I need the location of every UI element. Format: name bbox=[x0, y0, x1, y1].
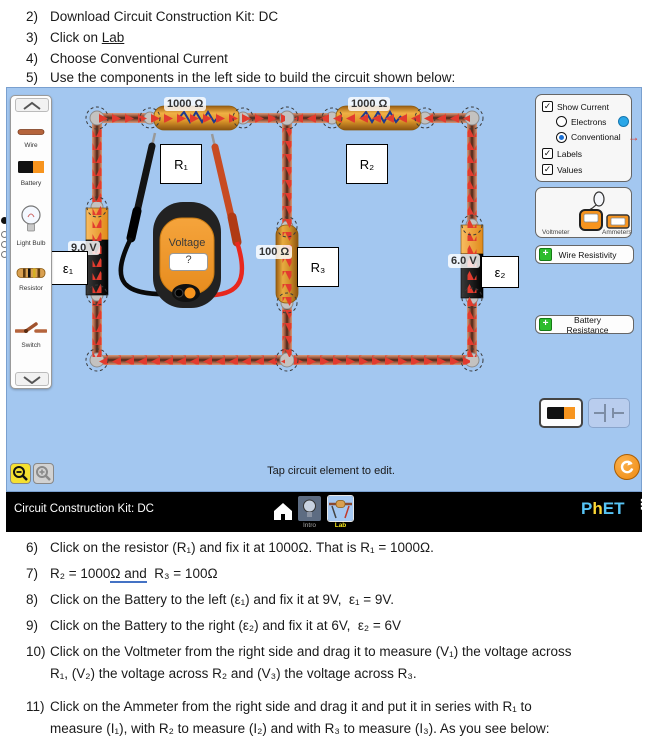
instruction-line: 9)Click on the Battery to the right (ε₂)… bbox=[26, 618, 401, 633]
tab-intro-label[interactable]: Intro bbox=[298, 522, 321, 529]
phet-logo: PhET bbox=[581, 499, 624, 519]
status-message: Tap circuit element to edit. bbox=[206, 465, 456, 477]
item-text: Click on the Battery to the left (ε₁) an… bbox=[50, 592, 394, 607]
worksheet-page: 2)Download Circuit Construction Kit: DC … bbox=[0, 0, 662, 740]
toolbox-scroll-up[interactable] bbox=[15, 98, 49, 112]
zoom-in-button[interactable] bbox=[33, 463, 54, 484]
item-number: 7) bbox=[26, 566, 50, 581]
voltmeter-tool[interactable]: Voltmeter bbox=[542, 229, 569, 236]
item-text: R₃ = 100Ω bbox=[147, 566, 218, 581]
zoom-in-icon bbox=[35, 465, 52, 482]
checkbox-checked-icon: ✓ bbox=[542, 148, 553, 159]
battery2-value-label: 6.0 V bbox=[448, 254, 480, 268]
sim-navbar: Circuit Construction Kit: DC Intro bbox=[6, 492, 642, 532]
lab-circuit-icon bbox=[328, 496, 353, 521]
r3-value-label: 100 Ω bbox=[256, 245, 292, 259]
checkbox-checked-icon: ✓ bbox=[542, 101, 553, 112]
toolbox-item-wire[interactable]: Wire bbox=[11, 123, 51, 149]
wire-resistivity-button[interactable]: + Wire Resistivity bbox=[535, 245, 634, 264]
view-options-panel: ✓ Show Current Electrons Conventional → … bbox=[535, 94, 632, 182]
phet-simulation: Voltage ? 1000 Ω 1000 Ω 100 Ω 9.0 V 6.0 … bbox=[6, 87, 642, 532]
callout-r3: R₃ bbox=[297, 247, 339, 287]
item-number: 5) bbox=[26, 70, 50, 85]
radio-unselected-icon bbox=[556, 116, 567, 127]
callout-e1: ε₁ bbox=[48, 251, 88, 285]
item-text: Click on the resistor (R₁) and fix it at… bbox=[50, 540, 434, 555]
instruction-line: 11)Click on the Ammeter from the right s… bbox=[26, 699, 532, 714]
meters-panel: Voltmeter Ammeters bbox=[535, 187, 632, 238]
zoom-out-button[interactable] bbox=[10, 463, 31, 484]
chevron-up-icon bbox=[22, 101, 42, 110]
item-text: Download Circuit Construction Kit: DC bbox=[50, 9, 278, 24]
callout-r2: R₂ bbox=[346, 144, 388, 184]
labels-checkbox[interactable]: ✓ Labels bbox=[542, 148, 582, 159]
electron-dot-icon bbox=[618, 116, 629, 127]
toolbox-item-lightbulb[interactable]: Light Bulb bbox=[11, 204, 51, 247]
lab-link[interactable]: Lab bbox=[102, 30, 125, 45]
toolbox-item-battery[interactable]: Battery bbox=[11, 160, 51, 187]
kebab-menu-icon[interactable]: ⋮ bbox=[635, 500, 649, 508]
battery-schematic-icon bbox=[594, 403, 624, 423]
item-text: measure (I₁), with R₂ to measure (I₂) an… bbox=[50, 721, 549, 736]
instruction-line: R₁, (V₂) the voltage across R₂ and (V₃) … bbox=[50, 666, 417, 681]
conventional-radio[interactable]: Conventional → bbox=[556, 131, 640, 143]
instruction-line: 3)Click on Lab bbox=[26, 30, 124, 45]
item-number: 8) bbox=[26, 592, 50, 607]
tab-lab[interactable] bbox=[328, 496, 353, 521]
voltmeter-title: Voltage bbox=[163, 237, 211, 249]
reset-all-button[interactable] bbox=[614, 454, 640, 480]
item-number: 6) bbox=[26, 540, 50, 555]
r1-value-label: 1000 Ω bbox=[164, 97, 206, 111]
item-text: Click on the Battery to the right (ε₂) a… bbox=[50, 618, 401, 633]
toolbox-scroll-down[interactable] bbox=[15, 372, 49, 386]
battery-view-schematic-toggle[interactable] bbox=[588, 398, 630, 428]
item-text: Click on the Ammeter from the right side… bbox=[50, 699, 532, 714]
conventional-arrow-icon: → bbox=[628, 131, 640, 143]
voltmeter-reading: ? bbox=[169, 253, 208, 271]
item-number: 10) bbox=[26, 644, 50, 659]
instruction-line: 2)Download Circuit Construction Kit: DC bbox=[26, 9, 278, 24]
item-text: Click on bbox=[50, 30, 102, 45]
callout-r1: R₁ bbox=[160, 144, 202, 184]
instruction-line: 5)Use the components in the left side to… bbox=[26, 70, 455, 85]
battery-realistic-icon bbox=[546, 406, 576, 420]
instruction-line: 10)Click on the Voltmeter from the right… bbox=[26, 644, 572, 659]
lightbulb-icon bbox=[17, 204, 45, 234]
item-number: 4) bbox=[26, 51, 50, 66]
resistor-icon bbox=[16, 267, 46, 279]
item-text: Use the components in the left side to b… bbox=[50, 70, 455, 85]
wire-icon bbox=[17, 128, 45, 136]
callout-e2: ε₂ bbox=[481, 256, 519, 288]
expand-plus-icon: + bbox=[539, 318, 552, 331]
chevron-down-icon bbox=[22, 375, 42, 384]
reset-arrow-icon bbox=[619, 459, 635, 475]
instruction-line: 4)Choose Conventional Current bbox=[26, 51, 228, 66]
toolbox-item-resistor[interactable]: Resistor bbox=[11, 266, 51, 292]
toolbox-item-switch[interactable]: Switch bbox=[11, 320, 51, 349]
item-number: 3) bbox=[26, 30, 50, 45]
item-number: 11) bbox=[26, 699, 50, 714]
electrons-radio[interactable]: Electrons bbox=[556, 116, 629, 127]
values-checkbox[interactable]: ✓ Values bbox=[542, 164, 582, 175]
item-text: R₁, (V₂) the voltage across R₂ and (V₃) … bbox=[50, 666, 417, 681]
item-text: R₂ = 1000 bbox=[50, 566, 110, 581]
switch-icon bbox=[15, 320, 47, 336]
item-number: 9) bbox=[26, 618, 50, 633]
tab-intro[interactable] bbox=[298, 496, 321, 521]
battery-view-realistic-toggle[interactable] bbox=[539, 398, 583, 428]
instruction-line: 8)Click on the Battery to the left (ε₁) … bbox=[26, 592, 394, 607]
intro-bulb-icon bbox=[298, 496, 321, 521]
item-text: Click on the Voltmeter from the right si… bbox=[50, 644, 572, 659]
ammeter-tool[interactable]: Ammeters bbox=[602, 229, 632, 236]
instruction-line: 7)R₂ = 1000Ω and R₃ = 100Ω bbox=[26, 566, 218, 581]
tab-lab-label[interactable]: Lab bbox=[328, 522, 353, 529]
r2-value-label: 1000 Ω bbox=[348, 97, 390, 111]
item-number: 2) bbox=[26, 9, 50, 24]
sim-title: Circuit Construction Kit: DC bbox=[14, 503, 154, 515]
radio-selected-icon bbox=[556, 132, 567, 143]
instruction-line: measure (I₁), with R₂ to measure (I₂) an… bbox=[50, 721, 549, 736]
instruction-line: 6)Click on the resistor (R₁) and fix it … bbox=[26, 540, 434, 555]
underlined-text: Ω and bbox=[110, 566, 146, 583]
component-toolbox: Wire Battery Light Bulb bbox=[10, 95, 52, 389]
show-current-checkbox[interactable]: ✓ Show Current bbox=[542, 101, 609, 112]
checkbox-checked-icon: ✓ bbox=[542, 164, 553, 175]
item-text: Choose Conventional Current bbox=[50, 51, 228, 66]
battery-resistance-button[interactable]: + Battery Resistance bbox=[535, 315, 634, 334]
home-icon[interactable] bbox=[273, 501, 293, 521]
zoom-out-icon bbox=[12, 465, 29, 482]
battery-icon bbox=[17, 160, 45, 174]
expand-plus-icon: + bbox=[539, 248, 552, 261]
